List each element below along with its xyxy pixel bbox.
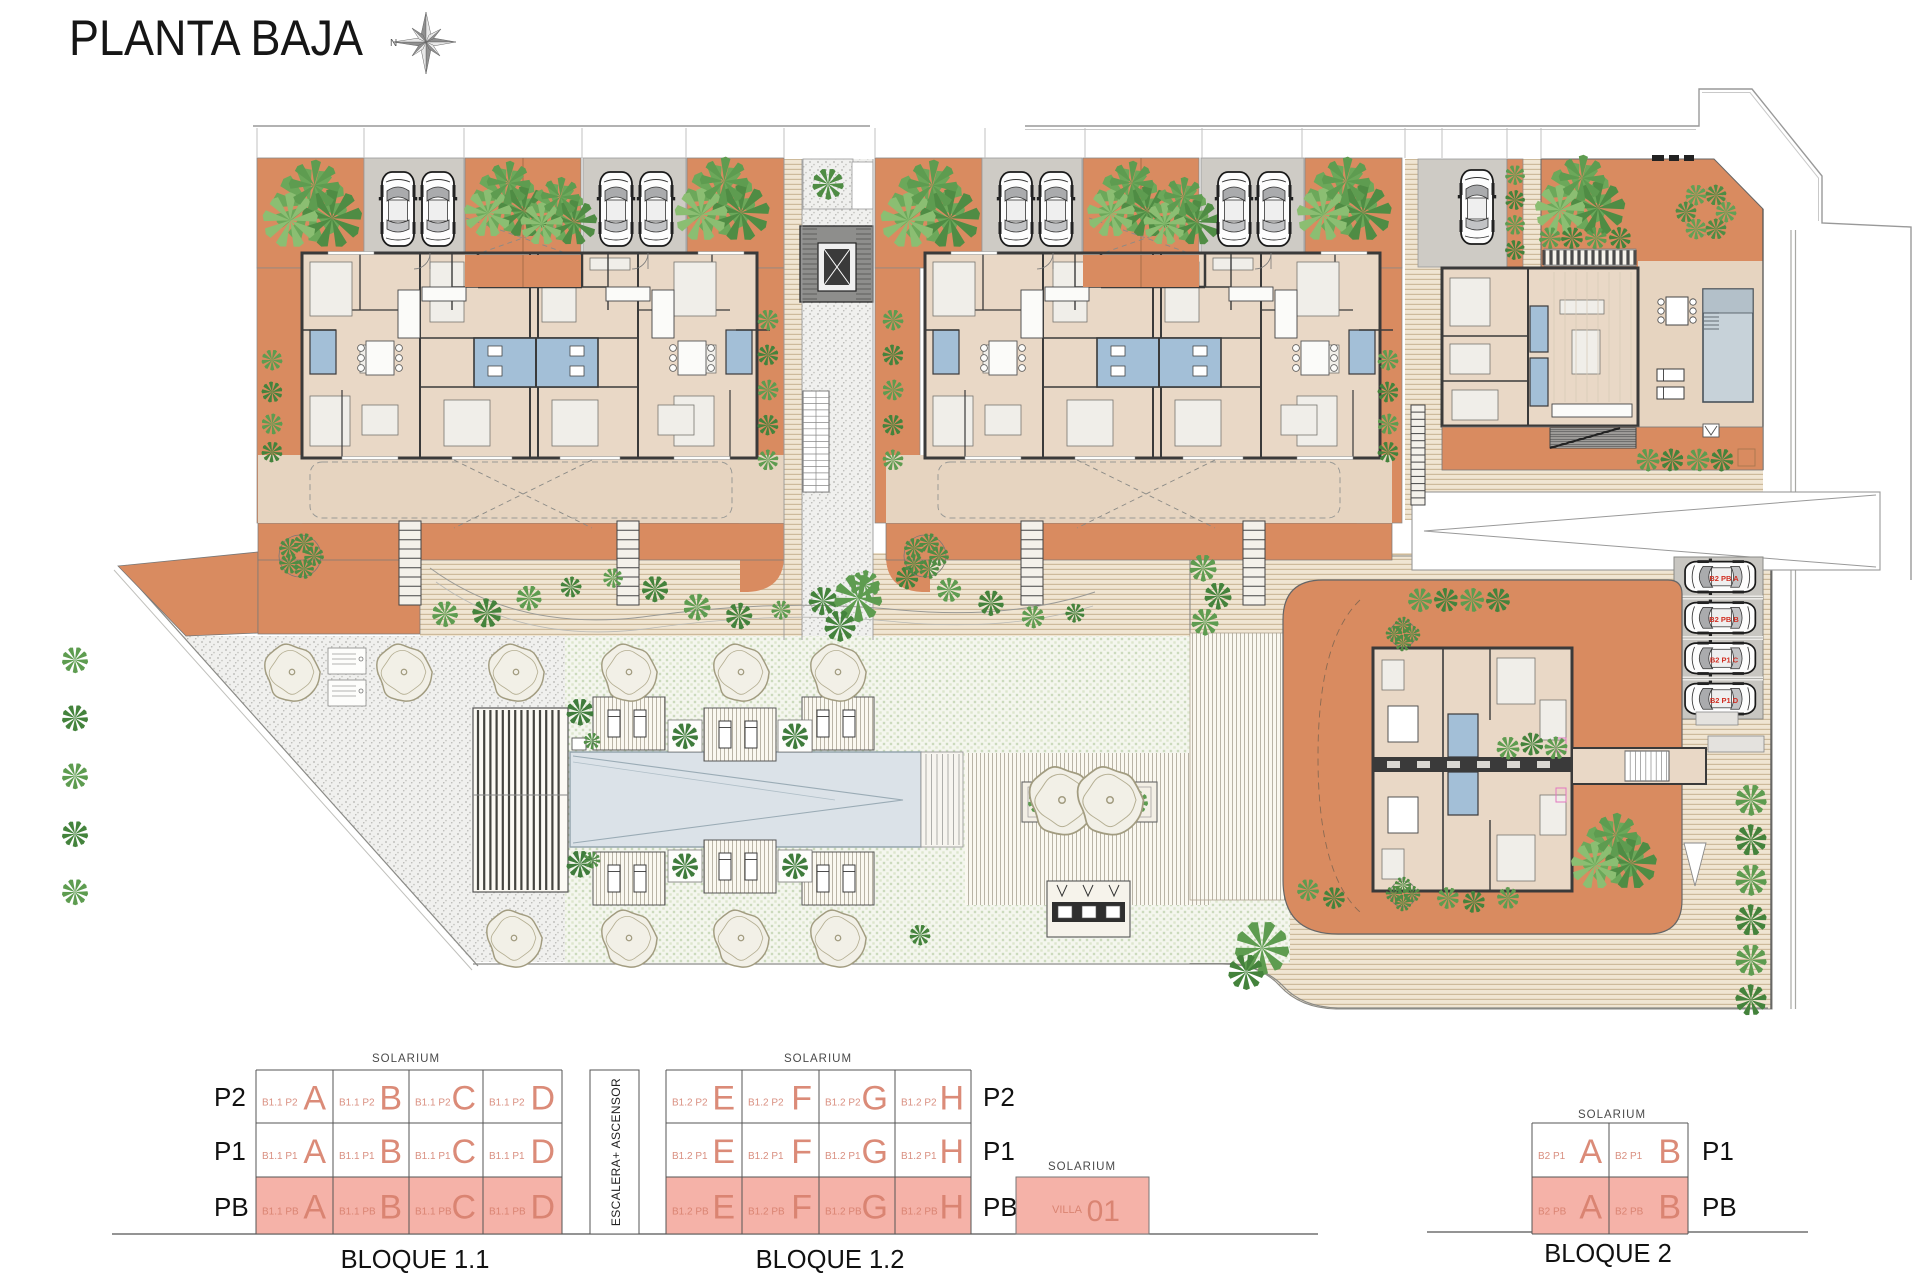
svg-text:E: E <box>712 1133 735 1171</box>
svg-text:B: B <box>379 1133 402 1171</box>
svg-text:B1.2 P1: B1.2 P1 <box>672 1151 708 1162</box>
svg-text:B: B <box>1658 1133 1681 1171</box>
svg-text:G: G <box>862 1080 888 1118</box>
svg-text:B2 P1: B2 P1 <box>1538 1151 1566 1162</box>
svg-text:D: D <box>530 1080 555 1118</box>
svg-text:ESCALERA+ ASCENSOR: ESCALERA+ ASCENSOR <box>609 1078 623 1226</box>
svg-text:B1.1 P2: B1.1 P2 <box>415 1098 451 1109</box>
svg-text:PB: PB <box>214 1192 249 1222</box>
svg-text:B1.1 PB: B1.1 PB <box>262 1207 299 1218</box>
svg-text:B1.2 P1: B1.2 P1 <box>748 1151 784 1162</box>
svg-text:A: A <box>303 1080 326 1118</box>
svg-text:P2: P2 <box>214 1082 246 1112</box>
svg-text:N: N <box>390 38 397 49</box>
svg-text:B1.2 PB: B1.2 PB <box>901 1207 938 1218</box>
svg-text:B1.2 P2: B1.2 P2 <box>748 1098 784 1109</box>
svg-text:SOLARIUM: SOLARIUM <box>784 1053 852 1065</box>
svg-text:P1: P1 <box>983 1136 1015 1166</box>
svg-text:SOLARIUM: SOLARIUM <box>1048 1161 1116 1173</box>
svg-text:P1: P1 <box>214 1136 246 1166</box>
svg-text:VILLA: VILLA <box>1052 1204 1083 1216</box>
svg-text:H: H <box>939 1133 964 1171</box>
svg-text:B2 P1: B2 P1 <box>1615 1151 1643 1162</box>
svg-text:B1.2 PB: B1.2 PB <box>748 1207 785 1218</box>
svg-text:B1.1 P2: B1.1 P2 <box>339 1098 375 1109</box>
svg-text:B1.1 P2: B1.1 P2 <box>262 1098 298 1109</box>
svg-text:B2 PB B: B2 PB B <box>1709 615 1739 624</box>
svg-text:B1.1 P1: B1.1 P1 <box>489 1151 525 1162</box>
svg-text:B1.2 P1: B1.2 P1 <box>825 1151 861 1162</box>
svg-text:A: A <box>1579 1189 1602 1227</box>
svg-text:B1.2 P2: B1.2 P2 <box>901 1098 937 1109</box>
svg-text:E: E <box>712 1189 735 1227</box>
svg-text:B1.2 PB: B1.2 PB <box>825 1207 862 1218</box>
svg-text:P2: P2 <box>983 1082 1015 1112</box>
svg-text:C: C <box>451 1080 476 1118</box>
svg-text:B: B <box>379 1080 402 1118</box>
svg-text:C: C <box>451 1133 476 1171</box>
svg-text:H: H <box>939 1080 964 1118</box>
svg-text:PB: PB <box>1702 1192 1737 1222</box>
svg-text:A: A <box>1579 1133 1602 1171</box>
svg-text:F: F <box>791 1133 812 1171</box>
svg-text:BLOQUE 2: BLOQUE 2 <box>1544 1240 1672 1268</box>
svg-text:B1.1 PB: B1.1 PB <box>339 1207 376 1218</box>
svg-text:B1.1 P2: B1.1 P2 <box>489 1098 525 1109</box>
svg-text:B: B <box>1658 1189 1681 1227</box>
svg-text:G: G <box>862 1133 888 1171</box>
svg-text:B1.1 P1: B1.1 P1 <box>415 1151 451 1162</box>
svg-text:E: E <box>712 1080 735 1118</box>
svg-text:B1.2 P2: B1.2 P2 <box>672 1098 708 1109</box>
svg-text:PLANTA BAJA: PLANTA BAJA <box>69 10 364 66</box>
svg-text:B1.1 P1: B1.1 P1 <box>262 1151 298 1162</box>
svg-text:G: G <box>862 1189 888 1227</box>
svg-text:D: D <box>530 1133 555 1171</box>
svg-text:A: A <box>303 1133 326 1171</box>
svg-text:B1.1 PB: B1.1 PB <box>489 1207 526 1218</box>
svg-text:B2 PB: B2 PB <box>1538 1207 1567 1218</box>
svg-text:B2 PB: B2 PB <box>1615 1207 1644 1218</box>
svg-text:B1.2 P2: B1.2 P2 <box>825 1098 861 1109</box>
svg-text:B2 P1 D: B2 P1 D <box>1710 696 1739 705</box>
svg-text:BLOQUE 1.1: BLOQUE 1.1 <box>341 1246 490 1274</box>
svg-text:B1.2 PB: B1.2 PB <box>672 1207 709 1218</box>
svg-text:PB: PB <box>983 1192 1018 1222</box>
svg-text:B1.1 P1: B1.1 P1 <box>339 1151 375 1162</box>
svg-text:P1: P1 <box>1702 1136 1734 1166</box>
svg-text:B1.1 PB: B1.1 PB <box>415 1207 452 1218</box>
svg-text:D: D <box>530 1189 555 1227</box>
svg-text:H: H <box>939 1189 964 1227</box>
svg-text:SOLARIUM: SOLARIUM <box>1578 1109 1646 1121</box>
svg-text:B: B <box>379 1189 402 1227</box>
svg-text:B2 PB A: B2 PB A <box>1709 574 1739 583</box>
svg-text:F: F <box>791 1080 812 1118</box>
svg-text:B1.2 P1: B1.2 P1 <box>901 1151 937 1162</box>
svg-text:BLOQUE 1.2: BLOQUE 1.2 <box>756 1246 905 1274</box>
svg-text:A: A <box>303 1189 326 1227</box>
svg-text:01: 01 <box>1087 1195 1120 1228</box>
svg-text:F: F <box>791 1189 812 1227</box>
svg-text:C: C <box>451 1189 476 1227</box>
svg-text:SOLARIUM: SOLARIUM <box>372 1053 440 1065</box>
svg-text:B2 P1 C: B2 P1 C <box>1710 656 1739 665</box>
